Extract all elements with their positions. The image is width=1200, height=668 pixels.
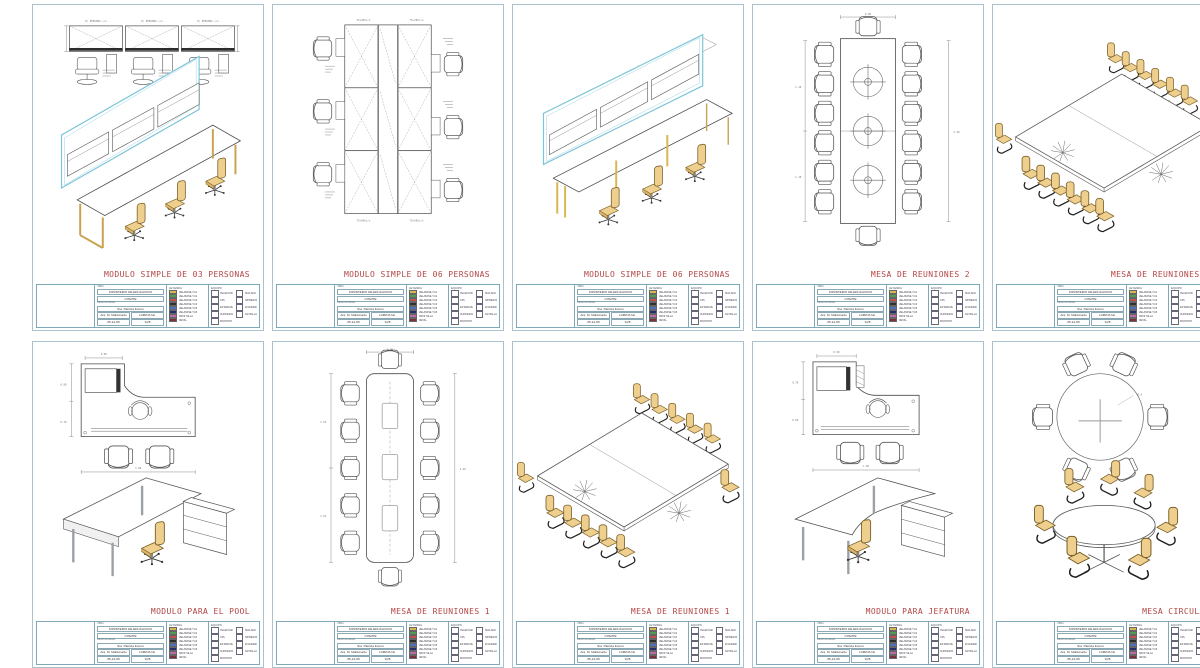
symbol-row: PANTALLA [1196,648,1200,655]
symbol-row: CPU [451,297,473,304]
equipment-icon [476,304,484,311]
equipment-icon [956,297,964,304]
symbol-label: IMPRESORA [965,299,978,302]
sheet-modulo-jefatura: 0.90 0.78 0.60 1.66 [752,341,984,668]
legend-label: MELAMINE T-02 [419,295,438,298]
legend-label: MELAMINE T-05 [659,644,678,647]
equipment-icon [931,297,939,304]
symbol-row: ESTABILIZADOR [691,304,713,311]
sheet-mesa-reuniones-1-plan: 0.90 1.10 1.10 2.40 MESA DE REUNI [272,341,504,668]
title-block-logo-box [517,622,575,664]
symbol-row: MONITOR [931,318,953,325]
title-block: OBRA: MINISTERIO DE EDUCACION COMITE RES… [516,284,740,328]
symbol-row: CPU [451,634,473,641]
legend-label: MELAMINE T-02 [419,632,438,635]
legend-label: MELAMINE T-03 [179,636,198,639]
symbol-row: SUPRESOR [1171,648,1193,655]
responsable-label: RESPONSABLE: [817,639,884,642]
sheet-title: MODULO SIMPLE DE 06 PERSONAS [584,270,730,279]
title-block-logo-box [757,285,815,327]
symbol-row: MONITOR [1171,655,1193,662]
symbol-label: ESTABILIZADOR [220,643,233,646]
symbol-row: TECLADO [1196,290,1200,297]
equipment-icon [1171,655,1179,662]
equipment-icon [476,627,484,634]
symbol-row: SUPRESOR [451,311,473,318]
title-block-symbols: EQUIPO TELEFONOCPUESTABILIZADORSUPRESORM… [689,622,739,664]
equipment-icon [236,304,244,311]
equipment-icon [1196,311,1200,318]
fecha-value: 05-12-05 [577,656,610,663]
symbol-label: IMPRESORA [965,636,978,639]
symbol-label: MONITOR [1180,320,1192,323]
drawing-mesa-1-plan: 0.90 1.10 1.10 2.40 [274,344,502,596]
lamina-label: LAMINA No. [371,312,404,319]
symbol-label: TELEFONO [1180,292,1193,295]
equipment-icon [956,290,964,297]
drawing-modulo-jefatura-svg: 0.90 0.78 0.60 1.66 [754,344,982,596]
symbol-label: SCANNER [965,306,977,309]
responsable-label: RESPONSABLE: [97,639,164,642]
symbol-row: CPU [691,634,713,641]
escala-value: 1/25 [851,656,884,663]
iso-jefatura-desk [795,478,952,574]
equipment-icon [691,311,699,318]
symbol-label: TELEFONO [1180,629,1193,632]
legend-swatch [649,318,657,322]
equipment-icon [211,634,219,641]
equipment-icon [716,297,724,304]
fecha-value: 05-12-05 [337,319,370,326]
symbol-row: ESTABILIZADOR [451,304,473,311]
title-block-logo-box [277,622,335,664]
module-label: P/ PERSONA c/u [197,19,219,23]
sheet-modulo-simple-03-personas: P/ PERSONA c/u P/ PERSONA c/u P/ PERSONA… [32,4,264,331]
symbols-list: TELEFONOCPUESTABILIZADORSUPRESORMONITORT… [451,290,497,325]
cliente-value: COMITE [337,633,404,639]
equipment-icon [956,304,964,311]
equipment-icon [236,627,244,634]
title-block-legend: LEYENDA MELAMINE T-01MELAMINE T-02MELAMI… [887,622,929,664]
dim-label: 0.90 [833,350,840,354]
equipment-icon [451,304,459,311]
legend-list: MELAMINE T-01MELAMINE T-02MELAMINE T-03M… [169,290,206,322]
equipment-icon [211,318,219,325]
legend-label: MELAMINE T-06 [1139,311,1158,314]
symbol-label: MONITOR [700,657,712,660]
symbol-label: TELEFONO [940,292,953,295]
responsable-value: Sra. Patricia Forero [817,643,884,649]
symbol-label: TECLADO [245,629,257,632]
dim-label: 1.10 [795,175,802,179]
drawing-modulo-06-iso-svg [514,7,742,259]
symbol-row: TECLADO [956,627,978,634]
equipment-icon [476,311,484,318]
symbol-label: CPU [700,299,705,302]
symbol-row: CPU [1171,297,1193,304]
equipment-icon [956,648,964,655]
legend-label: METAL [659,656,667,659]
equipment-icon [451,290,459,297]
title-block-fields: OBRA: MINISTERIO DE EDUCACION COMITE RES… [335,285,407,327]
title-block-legend: LEYENDA MELAMINE T-01MELAMINE T-02MELAMI… [1127,285,1169,327]
drawing-modulo-06-plan: 75+h95c/u 75+h95c/u [274,7,502,259]
lamina-label: LAMINA No. [1091,312,1124,319]
symbol-row: ESTABILIZADOR [691,641,713,648]
responsable-value: Sra. Patricia Forero [577,643,644,649]
sheet-title: MODULO SIMPLE DE 03 PERSONAS [104,270,250,279]
equipment-icon [931,634,939,641]
dim-label: 75+h95c/u [410,218,424,222]
legend-label: MELAMINE T-02 [179,632,198,635]
responsable-label: RESPONSABLE: [577,639,644,642]
symbol-label: ESTABILIZADOR [700,643,713,646]
legend-label: MELAMINE T-03 [179,299,198,302]
escala-value: 1/25 [1091,656,1124,663]
fecha-value: 05-12-05 [97,319,130,326]
dim-label: 2.40 [460,467,467,471]
dibujo-value: Arq. M. Maldonado [817,649,850,656]
symbol-row: SCANNER [236,304,258,311]
symbol-row: SUPRESOR [211,311,233,318]
title-block-fields: OBRA: MINISTERIO DE EDUCACION COMITE RES… [815,622,887,664]
legend-label: MELAMINE T-05 [179,644,198,647]
symbol-label: TELEFONO [460,292,473,295]
escala-value: 1/25 [851,319,884,326]
symbol-row: TECLADO [1196,627,1200,634]
symbol-row: PANTALLA [716,311,738,318]
legend-label: MELAMINE T-06 [1139,648,1158,651]
dim-label: 1.80 [135,466,142,470]
equipment-icon [476,634,484,641]
symbol-label: MONITOR [940,657,952,660]
obra-value: MINISTERIO DE EDUCACION [577,626,644,632]
legend-list: MELAMINE T-01MELAMINE T-02MELAMINE T-03M… [889,627,926,659]
dibujo-value: Arq. M. Maldonado [817,312,850,319]
equipment-icon [1171,641,1179,648]
symbol-row: IMPRESORA [716,634,738,641]
legend-label: MELAMINE T-01 [1139,291,1158,294]
sheet-title: MODULO SIMPLE DE 06 PERSONAS [344,270,490,279]
title-block-fields: OBRA: MINISTERIO DE EDUCACION COMITE RES… [575,285,647,327]
symbol-label: TELEFONO [220,629,233,632]
legend-label: MELAMINE T-02 [1139,295,1158,298]
legend-label: TAPIZ SILLA [179,315,193,318]
dim-label: 75+h95c/u [357,218,371,222]
fecha-value: 05-12-05 [817,319,850,326]
legend-label: METAL [1139,656,1147,659]
symbol-row: SUPRESOR [931,311,953,318]
symbol-label: SCANNER [245,643,257,646]
obra-value: MINISTERIO DE EDUCACION [97,289,164,295]
title-block-legend: LEYENDA MELAMINE T-01MELAMINE T-02MELAMI… [647,622,689,664]
symbol-label: MONITOR [1180,657,1192,660]
equipment-icon [236,634,244,641]
legend-label: MELAMINE T-04 [179,640,198,643]
legend-label: MELAMINE T-06 [659,311,678,314]
equipment-icon [691,634,699,641]
title-block-legend: LEYENDA MELAMINE T-01MELAMINE T-02MELAMI… [647,285,689,327]
obra-value: MINISTERIO DE EDUCACION [817,626,884,632]
dim-label: 1.66 [863,464,870,468]
title-block-fields: OBRA: MINISTERIO DE EDUCACION COMITE RES… [815,285,887,327]
symbol-label: CPU [460,636,465,639]
dim-label: 0.78 [792,381,799,385]
legend-label: MELAMINE T-03 [1139,636,1158,639]
title-block-symbols: EQUIPO TELEFONOCPUESTABILIZADORSUPRESORM… [449,622,499,664]
title-block-fields: OBRA: MINISTERIO DE EDUCACION COMITE RES… [335,622,407,664]
equipment-icon [931,311,939,318]
drawing-modulo-06-iso [514,7,742,259]
symbol-row: IMPRESORA [716,297,738,304]
drawing-modulo-03-svg: P/ PERSONA c/u P/ PERSONA c/u P/ PERSONA… [34,7,262,259]
symbol-row: SCANNER [956,641,978,648]
equipment-icon [1171,304,1179,311]
legend-list: MELAMINE T-01MELAMINE T-02MELAMINE T-03M… [169,627,206,659]
cliente-value: COMITE [817,633,884,639]
symbol-label: MONITOR [940,320,952,323]
lamina-label: LAMINA No. [611,649,644,656]
equipment-icon [451,641,459,648]
responsable-label: RESPONSABLE: [337,639,404,642]
sheet-title: MODULO PARA JEFATURA [866,607,970,616]
title-block: OBRA: MINISTERIO DE EDUCACION COMITE RES… [276,284,500,328]
legend-label: TAPIZ SILLA [419,652,433,655]
legend-label: TAPIZ SILLA [1139,315,1153,318]
symbol-row: PANTALLA [1196,311,1200,318]
legend-label: MELAMINE T-04 [899,303,918,306]
symbol-label: PANTALLA [725,650,737,653]
legend-label: MELAMINE T-03 [419,636,438,639]
symbol-row: PANTALLA [476,311,498,318]
dim-label: 1.10 [795,85,802,89]
dim-label: 0.70 [60,420,67,424]
symbol-row: ESTABILIZADOR [931,641,953,648]
dibujo-value: Arq. M. Maldonado [97,312,130,319]
equipment-icon [236,311,244,318]
title-block-fields: OBRA: MINISTERIO DE EDUCACION COMITE RES… [95,285,167,327]
equipment-icon [451,634,459,641]
legend-label: METAL [179,656,187,659]
symbol-row: SUPRESOR [691,648,713,655]
symbol-label: PANTALLA [245,313,257,316]
sheet-title: MESA DE REUNIONES 2 [871,270,970,279]
symbol-label: SUPRESOR [220,313,233,316]
symbol-label: ESTABILIZADOR [460,306,473,309]
legend-label: MELAMINE T-05 [179,307,198,310]
obra-value: MINISTERIO DE EDUCACION [1057,289,1124,295]
legend-label: MELAMINE T-04 [419,640,438,643]
title-block-symbols: EQUIPO TELEFONOCPUESTABILIZADORSUPRESORM… [209,285,259,327]
legend-label: MELAMINE T-04 [1139,303,1158,306]
module-label: P/ PERSONA c/u [141,19,163,23]
iso-circular-table [1034,461,1177,580]
drawing-modulo-03: P/ PERSONA c/u P/ PERSONA c/u P/ PERSONA… [34,7,262,259]
legend-swatch [1129,655,1137,659]
symbol-label: IMPRESORA [725,636,738,639]
equipment-icon [1171,297,1179,304]
symbol-label: SCANNER [965,643,977,646]
legend-label: MELAMINE T-02 [179,295,198,298]
symbol-label: TELEFONO [700,292,713,295]
equipment-icon [691,627,699,634]
obra-value: MINISTERIO DE EDUCACION [817,289,884,295]
lamina-label: LAMINA No. [851,312,884,319]
symbol-row: IMPRESORA [476,634,498,641]
legend-label: MELAMINE T-01 [1139,628,1158,631]
lamina-label: LAMINA No. [611,312,644,319]
legend-label: MELAMINE T-03 [419,299,438,302]
drawing-mesa-1-plan-svg: 0.90 1.10 1.10 2.40 [274,344,502,596]
equipment-icon [691,304,699,311]
symbol-label: CPU [940,299,945,302]
dim-label: 75+h95c/u [410,18,424,22]
symbol-row: MONITOR [451,655,473,662]
title-block: OBRA: MINISTERIO DE EDUCACION COMITE RES… [516,621,740,665]
drawing-mesa-2-plan: 0.90 1.10 1.10 2.40 [754,7,982,259]
legend-label: MELAMINE T-05 [899,644,918,647]
title-block-legend: LEYENDA MELAMINE T-01MELAMINE T-02MELAMI… [167,622,209,664]
equipment-icon [1196,304,1200,311]
symbol-row: PANTALLA [236,648,258,655]
legend-swatch [169,655,177,659]
drawing-mesa-1-iso-svg [514,344,742,596]
dim-label: 1.10 [320,420,327,424]
equipment-icon [716,290,724,297]
symbol-label: SUPRESOR [460,650,473,653]
symbol-row: SCANNER [476,641,498,648]
symbol-label: SUPRESOR [700,313,713,316]
legend-label: MELAMINE T-04 [899,640,918,643]
title-block-symbols: EQUIPO TELEFONOCPUESTABILIZADORSUPRESORM… [209,622,259,664]
legend-label: MELAMINE T-01 [659,628,678,631]
legend-label: MELAMINE T-06 [659,648,678,651]
drawing-modulo-pool-svg: 0.60 0.80 0.70 1.80 [34,344,262,596]
symbol-row: MONITOR [451,318,473,325]
symbol-row: TELEFONO [451,627,473,634]
legend-swatch [409,318,417,322]
legend-label: MELAMINE T-05 [1139,307,1158,310]
legend-label: MELAMINE T-05 [419,644,438,647]
symbol-row: PANTALLA [236,311,258,318]
dibujo-value: Arq. M. Maldonado [577,649,610,656]
symbol-row: SCANNER [1196,641,1200,648]
equipment-icon [211,627,219,634]
symbol-row: IMPRESORA [476,297,498,304]
equipment-icon [236,290,244,297]
title-block-fields: OBRA: MINISTERIO DE EDUCACION COMITE RES… [95,622,167,664]
symbol-label: TECLADO [485,292,497,295]
legend-label: MELAMINE T-06 [179,648,198,651]
title-block-symbols: EQUIPO TELEFONOCPUESTABILIZADORSUPRESORM… [689,285,739,327]
title-block-symbols: EQUIPO TELEFONOCPUESTABILIZADORSUPRESORM… [929,285,979,327]
equipment-icon [211,304,219,311]
symbols-list: TELEFONOCPUESTABILIZADORSUPRESORMONITORT… [691,290,737,325]
title-block-logo-box [517,285,575,327]
symbol-row: ESTABILIZADOR [1171,641,1193,648]
legend-swatch [889,655,897,659]
equipment-icon [211,311,219,318]
legend-label: MELAMINE T-06 [899,311,918,314]
title-block-legend: LEYENDA MELAMINE T-01MELAMINE T-02MELAMI… [1127,622,1169,664]
symbols-list: TELEFONOCPUESTABILIZADORSUPRESORMONITORT… [211,627,257,662]
symbol-label: ESTABILIZADOR [700,306,713,309]
symbol-label: CPU [1180,636,1185,639]
legend-list: MELAMINE T-01MELAMINE T-02MELAMINE T-03M… [1129,627,1166,659]
lamina-label: LAMINA No. [131,649,164,656]
symbol-row: CPU [931,297,953,304]
responsable-value: Sra. Patricia Forero [577,306,644,312]
symbol-label: SCANNER [245,306,257,309]
equipment-icon [211,290,219,297]
equipment-icon [236,648,244,655]
equipment-icon [716,304,724,311]
symbol-row: MONITOR [691,655,713,662]
symbol-label: TECLADO [725,292,737,295]
legend-label: MELAMINE T-03 [899,636,918,639]
symbol-row: TECLADO [236,290,258,297]
equipment-icon [451,297,459,304]
symbol-row: SUPRESOR [691,311,713,318]
legend-row: METAL [649,655,686,659]
symbol-row: MONITOR [931,655,953,662]
symbol-label: IMPRESORA [245,299,258,302]
title-block-symbols: EQUIPO TELEFONOCPUESTABILIZADORSUPRESORM… [1169,285,1200,327]
equipment-icon [211,641,219,648]
legend-label: MELAMINE T-05 [1139,644,1158,647]
legend-label: TAPIZ SILLA [419,315,433,318]
symbol-label: SUPRESOR [460,313,473,316]
dibujo-value: Arq. M. Maldonado [577,312,610,319]
legend-label: MELAMINE T-01 [899,628,918,631]
legend-row: METAL [409,318,446,322]
equipment-icon [691,648,699,655]
equipment-icon [451,627,459,634]
dim-label: 2.40 [953,130,960,134]
legend-label: MELAMINE T-01 [179,628,198,631]
title-block: OBRA: MINISTERIO DE EDUCACION COMITE RES… [756,284,980,328]
legend-swatch [649,655,657,659]
responsable-label: RESPONSABLE: [1057,639,1124,642]
symbol-row: TELEFONO [691,290,713,297]
legend-label: MELAMINE T-03 [899,299,918,302]
title-block-legend: LEYENDA MELAMINE T-01MELAMINE T-02MELAMI… [167,285,209,327]
symbol-label: ESTABILIZADOR [460,643,473,646]
equipment-icon [1171,290,1179,297]
sheet-title: MESA DE REUNIONES 1 [391,607,490,616]
iso-pool-desk [63,478,234,576]
symbol-label: CPU [460,299,465,302]
symbol-row: ESTABILIZADOR [931,304,953,311]
symbol-row: TELEFONO [211,290,233,297]
legend-row: METAL [1129,655,1166,659]
symbol-label: IMPRESORA [485,636,498,639]
isometric-module-03 [62,56,241,248]
dibujo-value: Arq. M. Maldonado [1057,312,1090,319]
legend-label: MELAMINE T-06 [899,648,918,651]
legend-list: MELAMINE T-01MELAMINE T-02MELAMINE T-03M… [889,290,926,322]
dim-label: 0.60 [101,352,108,356]
escala-value: 1/25 [131,656,164,663]
symbol-row: PANTALLA [956,311,978,318]
equipment-icon [211,655,219,662]
fecha-value: 05-12-05 [1057,656,1090,663]
symbol-row: SUPRESOR [211,648,233,655]
legend-list: MELAMINE T-01MELAMINE T-02MELAMINE T-03M… [1129,290,1166,322]
sheet-title: MODULO PARA EL POOL [151,607,250,616]
obra-value: MINISTERIO DE EDUCACION [337,626,404,632]
legend-label: MELAMINE T-01 [419,291,438,294]
